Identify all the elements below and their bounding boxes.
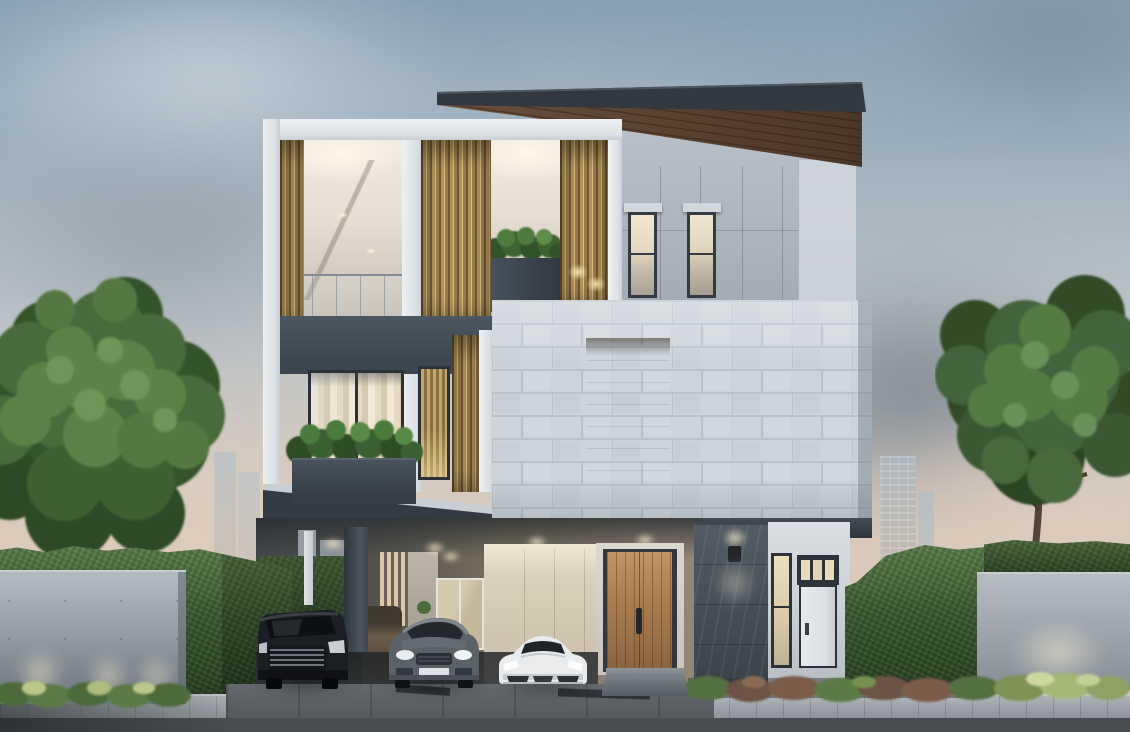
suv-intake-right — [455, 668, 472, 676]
suv-headlight-right — [454, 650, 472, 660]
suv-headlight-left — [396, 650, 414, 660]
van-windshield-reflection — [272, 619, 302, 636]
sports-intake-right — [557, 676, 579, 682]
van-wheel — [322, 678, 338, 689]
suv-wheel — [458, 680, 473, 688]
suv-grille — [416, 653, 452, 665]
vehicles — [0, 0, 1130, 732]
grey-suv — [381, 610, 487, 690]
sports-intake-left — [507, 676, 529, 682]
white-sports-car — [495, 630, 591, 694]
suv-wheel — [395, 680, 410, 688]
sports-shadow-line — [503, 682, 583, 684]
van-headlight-right — [328, 640, 345, 653]
sports-intake-centre — [533, 676, 553, 682]
suv-intake-left — [396, 668, 413, 676]
black-minivan — [252, 600, 356, 692]
van-wheel — [266, 678, 282, 689]
suv-bumper — [389, 675, 479, 680]
scene — [0, 0, 1130, 732]
